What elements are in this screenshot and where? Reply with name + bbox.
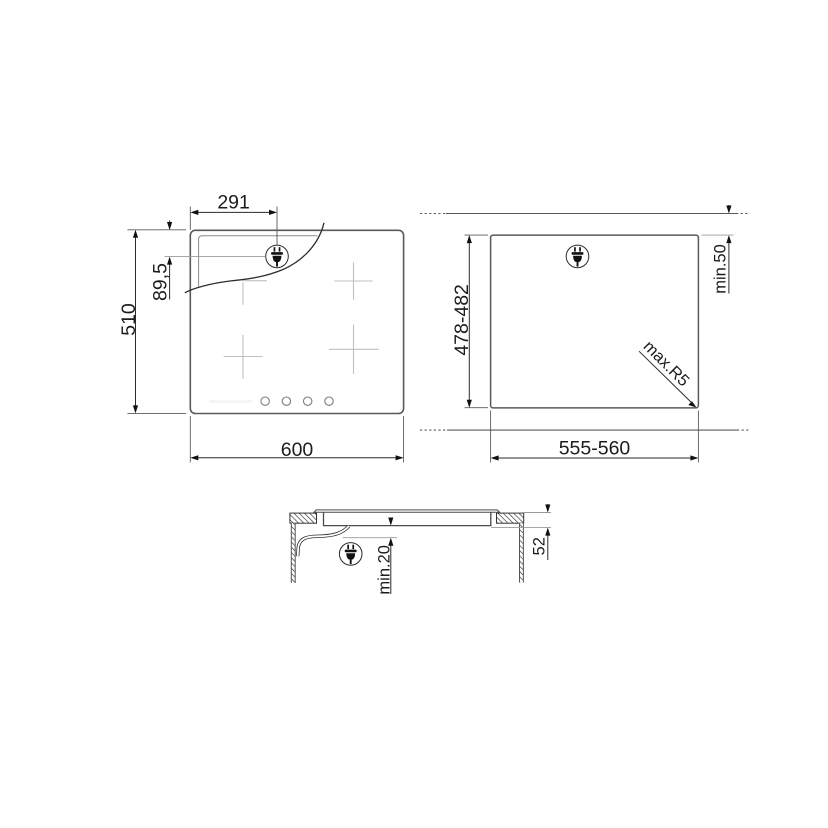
svg-text:555-560: 555-560 [559, 438, 631, 460]
svg-text:600: 600 [281, 439, 314, 461]
svg-text:510: 510 [118, 303, 140, 336]
svg-text:478-482: 478-482 [451, 284, 473, 356]
svg-text:min.50: min.50 [711, 244, 729, 294]
svg-text:89,5: 89,5 [149, 263, 171, 301]
svg-text:291: 291 [217, 192, 250, 214]
svg-text:min.20: min.20 [376, 545, 394, 595]
svg-text:52: 52 [531, 537, 549, 555]
